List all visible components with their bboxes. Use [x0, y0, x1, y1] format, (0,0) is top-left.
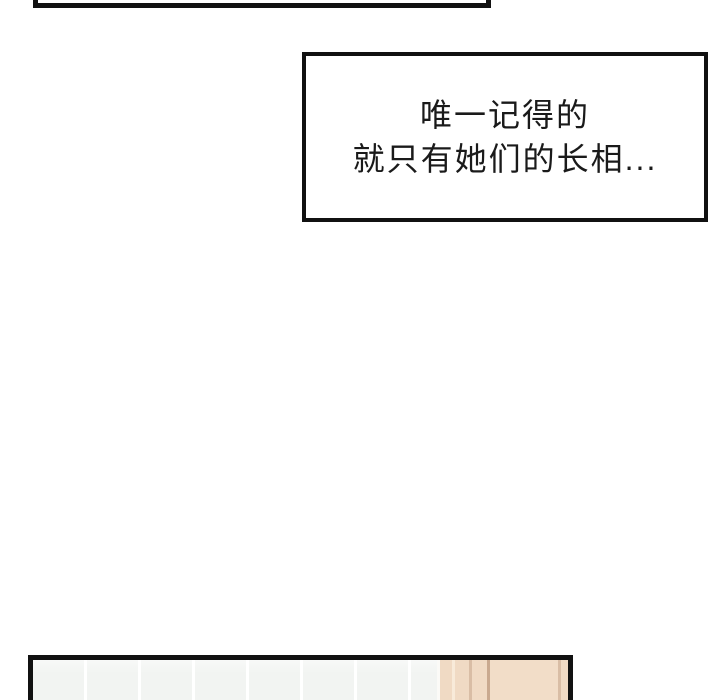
tiled-wall	[33, 660, 437, 700]
doorframe-wall	[440, 660, 568, 700]
caption-line-1: 唯一记得的	[420, 93, 590, 137]
caption-line-2: 就只有她们的长相...	[353, 137, 658, 181]
previous-panel-bottom-edge	[33, 0, 491, 8]
next-panel-top-edge	[28, 655, 573, 700]
caption-box: 唯一记得的 就只有她们的长相...	[302, 52, 708, 222]
comic-page: 唯一记得的 就只有她们的长相...	[0, 0, 720, 700]
